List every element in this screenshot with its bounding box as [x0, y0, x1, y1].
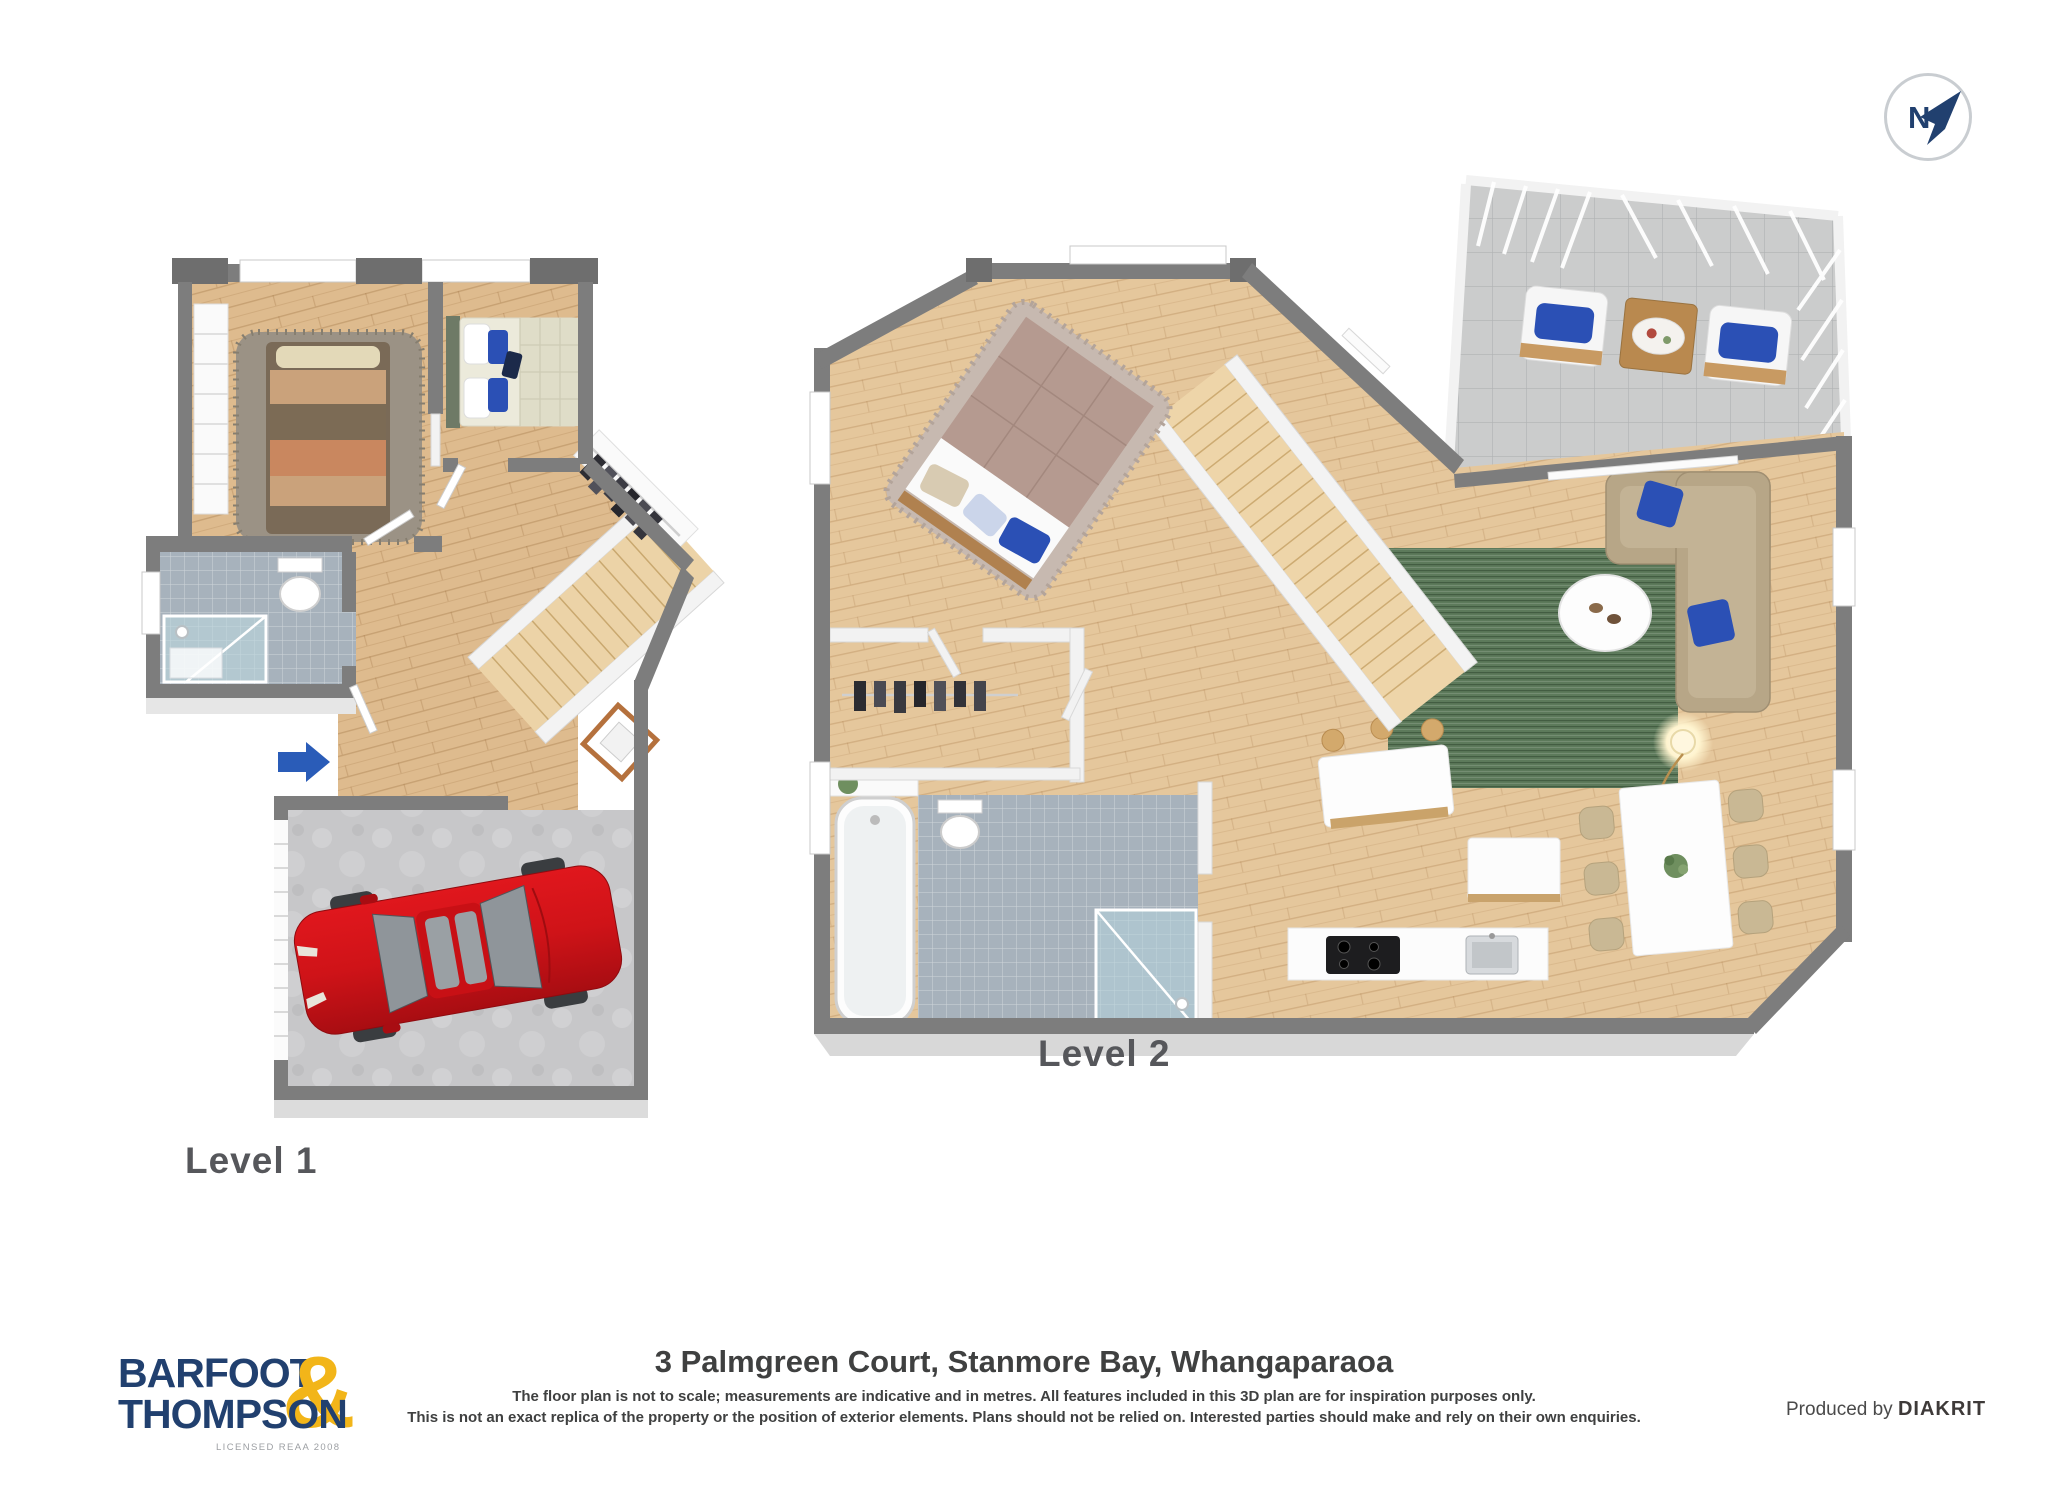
logo-license: LICENSED REAA 2008: [216, 1442, 340, 1453]
kitchen-sideboard: [1468, 838, 1560, 902]
north-compass: N: [1884, 73, 1972, 161]
balcony-chair: [1519, 285, 1608, 367]
level-2-floor-plan: [778, 150, 1918, 1075]
kitchen-sink: [1466, 933, 1518, 974]
entry-arrow-icon: [278, 742, 330, 782]
bathtub: [836, 798, 914, 1024]
toilet-level-2: [938, 800, 982, 848]
shower: [164, 616, 266, 682]
level-1-floor-plan: [128, 220, 728, 1150]
balcony-chair: [1703, 304, 1792, 386]
cooktop: [1326, 936, 1400, 974]
bedroom-2-bed: [446, 316, 578, 428]
bedroom-1: [194, 304, 422, 542]
level-2-label: Level 2: [1038, 1033, 1170, 1075]
producer-brand: DIAKRIT: [1898, 1398, 1986, 1420]
bathroom-level-2: [830, 774, 1198, 1031]
balcony: [1448, 180, 1846, 480]
disclaimer-line-2: This is not an exact replica of the prop…: [0, 1409, 2048, 1426]
floor-plan-page: N: [0, 0, 2048, 1494]
level-1-label: Level 1: [185, 1140, 317, 1182]
produced-by: Produced by DIAKRIT: [1786, 1398, 1986, 1421]
property-address: 3 Palmgreen Court, Stanmore Bay, Whangap…: [0, 1344, 2048, 1380]
produced-by-text: Produced by: [1786, 1399, 1893, 1420]
bedroom-2: [446, 316, 578, 428]
bedroom-1-bed: [266, 342, 390, 534]
coffee-table: [1559, 575, 1651, 651]
disclaimer-line-1: The floor plan is not to scale; measurem…: [0, 1388, 2048, 1405]
shower-level-2: [1096, 910, 1196, 1028]
bedroom-1-closet: [194, 304, 228, 514]
balcony-table: [1619, 298, 1698, 375]
toilet: [278, 558, 322, 611]
